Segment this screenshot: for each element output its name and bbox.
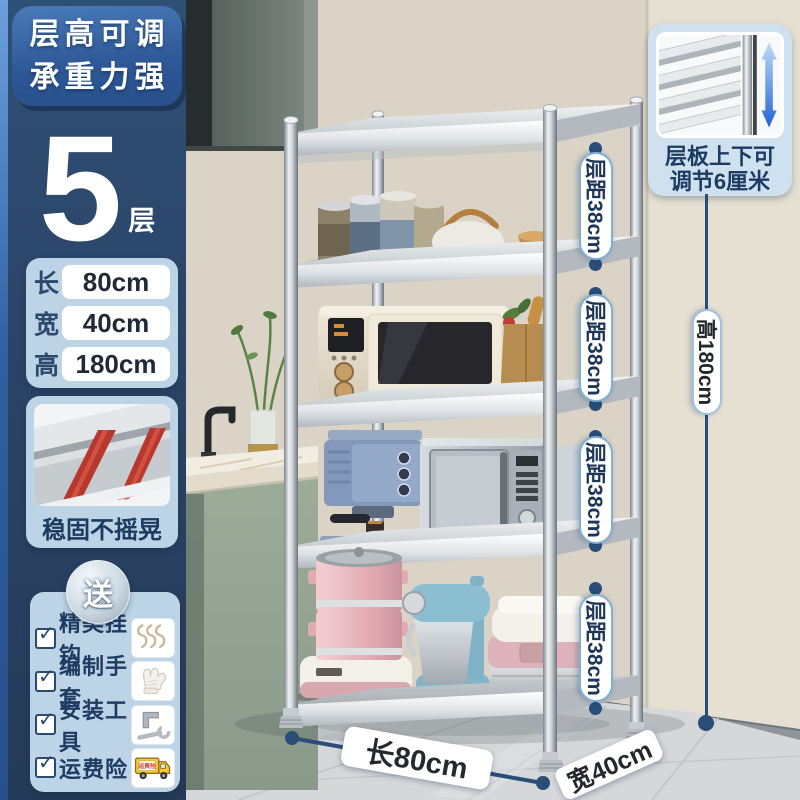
gap4-dot-bottom <box>589 702 602 715</box>
gloves-icon <box>131 661 175 701</box>
gap4-pill: 层距38cm <box>579 594 613 702</box>
gap2-pill: 层距38cm <box>579 294 613 402</box>
dimensions-card: 长 80cm 宽 40cm 高 180cm <box>26 258 178 388</box>
steamer <box>294 547 418 704</box>
adjustable-inset-card: 层板上下可 调节6厘米 <box>648 24 792 196</box>
product-poster: 层高可调 承重力强 5 层 长 80cm 宽 40cm 高 180cm <box>0 0 800 800</box>
gift-row-shipping: ✓ 运费险 运费险 <box>35 748 175 788</box>
checkbox-icon: ✓ <box>35 628 56 649</box>
gift-badge: 送 <box>66 560 130 624</box>
layer-unit: 层 <box>128 199 155 238</box>
gift-row-tools: ✓ 安装工具 <box>35 705 175 745</box>
length-dot-right <box>536 776 550 790</box>
gap1-pill: 层距38cm <box>579 152 613 260</box>
stability-card: 稳固不摇晃 <box>26 396 178 548</box>
width-value: 40cm <box>62 306 170 340</box>
dimension-row-height: 高 180cm <box>34 346 170 382</box>
dimension-row-width: 宽 40cm <box>34 305 170 341</box>
dimension-row-length: 长 80cm <box>34 264 170 300</box>
length-dot-left <box>285 731 299 745</box>
layer-number: 5 <box>39 122 122 254</box>
width-label: 宽 <box>34 305 62 341</box>
length-label: 长 <box>34 264 62 300</box>
stability-photo <box>34 404 170 506</box>
headline-badge: 层高可调 承重力强 <box>12 6 182 106</box>
length-value: 80cm <box>62 265 170 299</box>
checkbox-icon: ✓ <box>35 757 56 778</box>
inset-caption-line-1: 层板上下可 <box>648 144 792 169</box>
height-pill: 高180cm <box>692 309 722 415</box>
height-label: 高 <box>34 346 62 382</box>
checkbox-icon: ✓ <box>35 671 56 692</box>
gift-label-shipping: 运费险 <box>59 752 131 784</box>
checkbox-icon: ✓ <box>35 714 56 735</box>
svg-text:运费险: 运费险 <box>138 762 156 770</box>
left-accent-strip <box>0 0 8 800</box>
layer-count: 5 层 <box>8 100 186 254</box>
height-line <box>705 194 708 724</box>
truck-icon: 运费险 <box>131 748 175 788</box>
gap3-pill: 层距38cm <box>579 436 613 544</box>
adjustable-inset-caption: 层板上下可 调节6厘米 <box>648 144 792 194</box>
adjustable-inset-photo <box>656 32 784 138</box>
height-dot <box>698 715 714 731</box>
headline-line-1: 层高可调 <box>25 13 170 56</box>
inset-caption-line-2: 调节6厘米 <box>648 169 792 194</box>
height-value: 180cm <box>62 347 170 381</box>
s-hooks-icon <box>131 618 175 658</box>
headline-line-2: 承重力强 <box>25 56 170 99</box>
tools-icon <box>131 705 175 745</box>
stability-caption: 稳固不摇晃 <box>26 510 178 545</box>
